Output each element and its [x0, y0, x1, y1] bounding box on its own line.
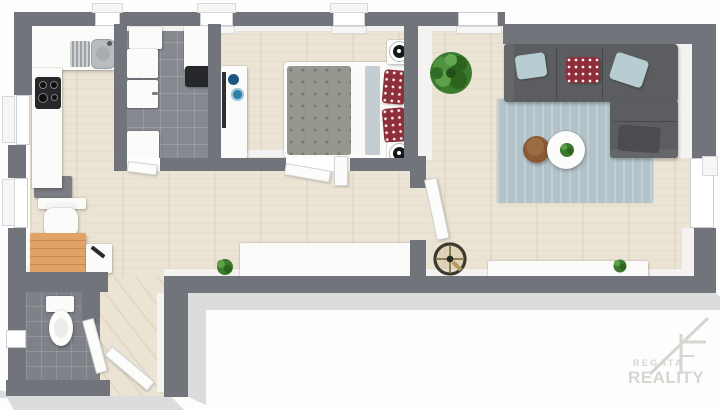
sink-faucet	[107, 41, 112, 46]
bedside-lamp-top-dot	[397, 49, 401, 53]
window-left-lower	[14, 178, 28, 228]
wall-top	[14, 12, 505, 26]
deco-bowl-dark-blue	[228, 74, 239, 85]
pedestal-fan-icon	[431, 240, 469, 278]
outer-sill-right	[702, 156, 718, 176]
bathroom-cabinet-top	[129, 27, 162, 49]
open-door-panel	[334, 156, 348, 186]
induction-cooktop	[35, 77, 61, 109]
window-bedroom	[333, 12, 365, 26]
inner-face-right-upper	[678, 44, 692, 158]
coffee-table-plant-icon	[558, 141, 576, 159]
watermark-brand-top: REGATA	[633, 358, 684, 368]
bed-duvet	[287, 66, 351, 155]
window-wc	[6, 330, 26, 348]
wall-hall-vertical	[164, 288, 188, 397]
watermark-brand-bottom: REALITY	[628, 368, 704, 388]
washing-machine	[127, 49, 158, 78]
bed-folded-throw	[365, 66, 380, 155]
dish-rack	[70, 41, 90, 67]
outer-sill-bedroom	[330, 3, 368, 13]
wall-left-upper	[14, 12, 32, 95]
sofa-pillow-blue-left	[514, 52, 547, 80]
cooktop-burner	[50, 81, 58, 89]
sofa-seam-3	[613, 121, 676, 122]
wall-living-entry-lower	[410, 240, 426, 278]
cooktop-burner	[38, 93, 48, 103]
wall-bottom-main	[164, 276, 716, 293]
sofa-armrest-left	[504, 44, 514, 102]
outer-sill-left-upper	[2, 96, 15, 143]
outer-sill-kitchen	[92, 3, 123, 13]
wall-office-wc-divider	[20, 272, 108, 292]
wall-right-upper	[692, 42, 716, 158]
wall-bedroom-bottom-right	[350, 158, 412, 171]
window-sill-foyer	[456, 26, 502, 34]
window-foyer	[458, 12, 498, 26]
cooktop-burner	[39, 81, 47, 89]
wall-living-top	[503, 24, 716, 44]
dresser-dark-strip	[222, 72, 226, 128]
office-desk	[30, 233, 86, 273]
washbasin-faucet	[152, 92, 158, 95]
side-table	[523, 136, 550, 163]
deco-bowl-blue	[231, 88, 244, 101]
sofa-pillow-red	[566, 57, 600, 83]
outer-sill-left-lower	[2, 179, 15, 226]
sofa-seam-1	[556, 48, 557, 100]
sink-basin	[96, 47, 110, 61]
sideboard-plant-icon	[612, 258, 628, 274]
bedside-lamp-bottom-dot	[397, 151, 401, 155]
window-sill-bedroom	[331, 26, 367, 34]
hall-plant-icon	[215, 257, 235, 277]
wall-living-entry-upper	[410, 156, 426, 188]
wall-left-lower	[8, 228, 26, 384]
wall-left-stub	[8, 145, 26, 178]
large-potted-plant-icon	[428, 50, 474, 96]
chaise-cushion	[617, 125, 661, 154]
wall-kitchen-bath	[114, 24, 127, 162]
hall-sideboard	[240, 243, 416, 277]
outer-sill-bathroom	[197, 3, 236, 13]
window-left-upper	[16, 95, 30, 145]
toilet-seat	[54, 318, 68, 338]
wall-bedroom-right	[404, 24, 418, 160]
wall-bath-bedroom	[208, 24, 221, 162]
floor-plan-canvas: REGATA REALITY	[0, 0, 720, 410]
sofa-seam-2	[602, 48, 603, 100]
cooktop-burner	[51, 94, 58, 101]
inner-face-hall-wall	[157, 293, 164, 392]
